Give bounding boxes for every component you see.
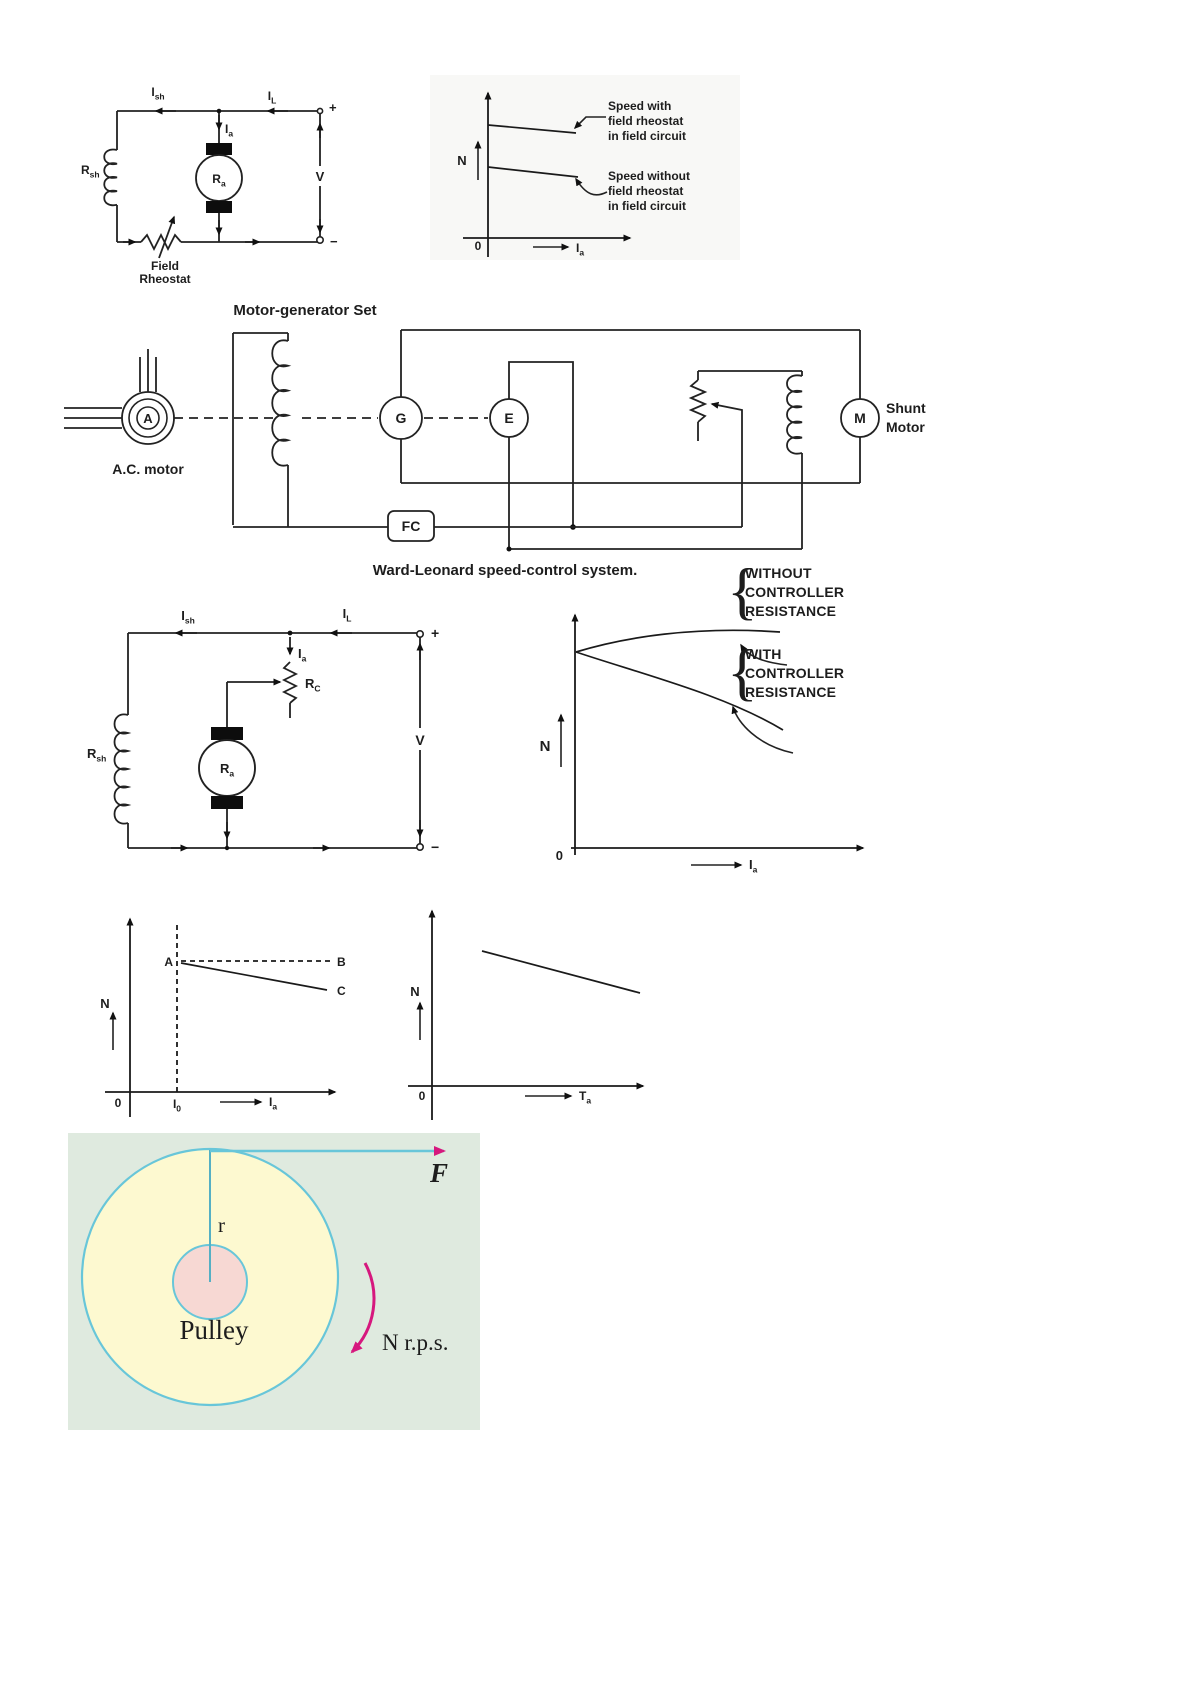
svg-text:G: G <box>396 410 407 426</box>
annotation-without-controller: WITHOUT CONTROLLER RESISTANCE <box>745 565 844 619</box>
exciter-symbol: E <box>490 399 528 437</box>
leader-arrow-with <box>733 707 793 753</box>
svg-text:in field circuit: in field circuit <box>608 199 686 213</box>
field-rheostat-label-2: Rheostat <box>139 272 190 286</box>
svg-text:RESISTANCE: RESISTANCE <box>745 684 836 700</box>
origin-label: 0 <box>556 848 563 863</box>
svg-text:WITH: WITH <box>745 646 782 662</box>
speed-vs-armature-current-graph-controller-resistance: { WITHOUT CONTROLLER RESISTANCE { WITH C… <box>495 555 895 885</box>
generator-field-coil <box>272 340 288 465</box>
origin-label: 0 <box>115 1096 122 1110</box>
point-c-label: C <box>337 984 346 998</box>
svg-text:Speed without: Speed without <box>608 169 690 183</box>
svg-text:RESISTANCE: RESISTANCE <box>745 603 836 619</box>
radius-label: r <box>218 1213 225 1237</box>
fc-label: FC <box>402 518 421 534</box>
shunt-motor-field-rheostat-circuit: Ish IL Ia Rsh Ra V + − Field Rheostat <box>75 70 425 300</box>
il-label: IL <box>268 89 277 106</box>
voltage-label: V <box>316 169 325 184</box>
y-axis-label: N <box>100 996 109 1011</box>
positive-terminal <box>317 108 322 113</box>
plus-sign: + <box>329 100 337 115</box>
ac-motor-label: A.C. motor <box>112 461 184 477</box>
point-a-label: A <box>164 955 173 969</box>
generator-field-circuit <box>233 333 288 527</box>
line-a-to-c <box>181 963 327 990</box>
annotation-with-controller: WITH CONTROLLER RESISTANCE <box>745 646 844 700</box>
controller-resistance-resistor <box>284 662 296 703</box>
origin-label: 0 <box>475 239 482 253</box>
svg-text:E: E <box>504 410 513 426</box>
svg-text:A: A <box>143 411 153 426</box>
x-axis-label: Ia <box>269 1095 277 1112</box>
plus-sign: + <box>431 625 439 641</box>
speed-vs-armature-current-graph-field-rheostat: N 0 Ia Speed with field rheostat in fiel… <box>430 75 740 265</box>
pulley-diagram: r Pulley F N r.p.s. <box>68 1133 480 1430</box>
ish-label: Ish <box>151 85 164 102</box>
rsh-label: Rsh <box>81 163 100 180</box>
rheostat-wiper-wire <box>712 404 742 527</box>
x-axis-label: Ia <box>749 857 758 875</box>
rotation-arrow <box>352 1263 374 1352</box>
motor-generator-set-title: Motor-generator Set <box>233 302 376 319</box>
x-axis-label: Ta <box>579 1089 591 1106</box>
axes <box>571 615 863 855</box>
svg-text:CONTROLLER: CONTROLLER <box>745 665 844 681</box>
ward-leonard-speed-control-diagram: Motor-generator Set A A.C. motor <box>60 285 1160 585</box>
axes <box>105 919 335 1117</box>
shunt-motor-label-2: Motor <box>886 419 925 435</box>
svg-text:M: M <box>854 410 866 426</box>
svg-text:field rheostat: field rheostat <box>608 184 683 198</box>
circuit2-wires <box>115 631 421 851</box>
svg-text:field rheostat: field rheostat <box>608 114 683 128</box>
svg-text:WITHOUT: WITHOUT <box>745 565 812 581</box>
pulley-label: Pulley <box>179 1315 249 1345</box>
shunt-motor-controller-resistance-circuit: Ish IL Ia RC Rsh Ra V + − <box>75 590 455 865</box>
rc-label: RC <box>305 676 321 694</box>
svg-text:Speed with: Speed with <box>608 99 671 113</box>
rsh-label: Rsh <box>87 746 106 764</box>
annotation-speed-without: Speed without field rheostat in field ci… <box>608 169 690 213</box>
motor-field-circuit <box>691 371 802 549</box>
exciter-wires <box>507 362 803 552</box>
y-axis-label: N <box>410 984 419 999</box>
field-rheostat-resistor <box>141 235 181 249</box>
no-load-current-tick: I0 <box>173 1097 181 1114</box>
svg-text:CONTROLLER: CONTROLLER <box>745 584 844 600</box>
shunt-motor-symbol: M <box>841 399 879 437</box>
axes <box>408 911 643 1120</box>
ia-label: Ia <box>298 646 307 664</box>
ish-label: Ish <box>181 608 195 626</box>
point-b-label: B <box>337 955 346 969</box>
ac-motor-symbol: A <box>64 349 174 444</box>
il-label: IL <box>343 606 352 624</box>
svg-text:in field circuit: in field circuit <box>608 129 686 143</box>
motor-field-rheostat <box>691 380 705 422</box>
pulley-diagram-panel: r Pulley F N r.p.s. <box>68 1133 480 1430</box>
minus-sign: − <box>431 839 439 855</box>
fc-bus: FC <box>233 511 742 541</box>
generator-symbol: G <box>380 397 422 439</box>
scanned-textbook-page: Ish IL Ia Rsh Ra V + − Field Rheostat N … <box>0 0 1200 1696</box>
field-rheostat-label-1: Field <box>151 259 179 273</box>
voltage-label: V <box>415 732 425 748</box>
origin-label: 0 <box>419 1089 426 1103</box>
shunt-motor-label-1: Shunt <box>886 400 926 416</box>
negative-terminal <box>417 844 423 850</box>
y-axis-label: N <box>540 738 551 755</box>
minus-sign: − <box>330 234 338 249</box>
speed-vs-torque-graph: N 0 Ta <box>375 895 665 1125</box>
speed-torque-line <box>482 951 640 993</box>
force-label: F <box>429 1158 448 1188</box>
negative-terminal <box>317 237 323 243</box>
motor-field-coil <box>787 375 802 453</box>
shunt-field-coil <box>115 714 129 823</box>
positive-terminal <box>417 631 423 637</box>
y-axis-label: N <box>457 153 466 168</box>
ia-label: Ia <box>225 122 233 139</box>
shunt-field-coil <box>104 150 117 206</box>
speed-vs-armature-current-graph-abc: A B C N 0 I0 Ia <box>85 895 375 1125</box>
rotation-speed-label: N r.p.s. <box>382 1330 448 1355</box>
